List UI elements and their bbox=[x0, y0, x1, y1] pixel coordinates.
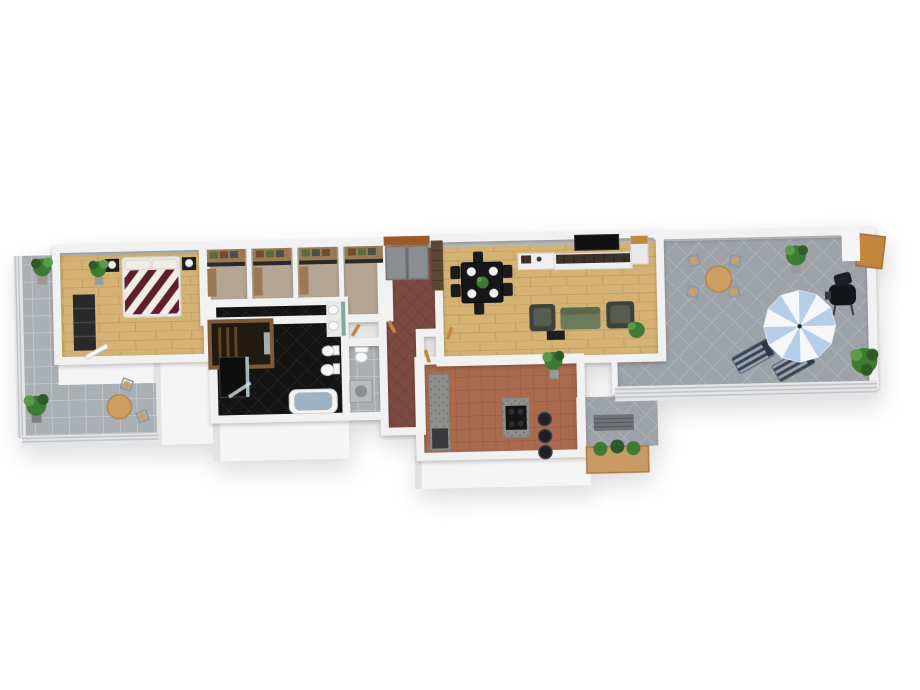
terrace-top-wall bbox=[654, 231, 875, 236]
floor-plan-page bbox=[0, 0, 920, 690]
sink bbox=[328, 305, 338, 314]
floor-plan-rendering bbox=[0, 0, 920, 690]
cooktop bbox=[505, 406, 527, 430]
coffee-table bbox=[547, 331, 565, 340]
entry-door-leaf bbox=[386, 246, 407, 279]
dining-chair bbox=[450, 266, 460, 279]
sideboard-slats bbox=[556, 253, 630, 264]
bedside-lamp bbox=[108, 261, 115, 268]
balcony-table bbox=[107, 394, 132, 419]
closet-niche bbox=[345, 246, 383, 264]
bar-stool bbox=[538, 412, 551, 425]
closet-partition bbox=[295, 244, 296, 304]
wooden-gate bbox=[856, 234, 886, 269]
sauna-glass-door bbox=[264, 332, 270, 354]
bar-stool bbox=[538, 429, 551, 442]
apartment-plan bbox=[13, 224, 891, 498]
dining-chair bbox=[502, 265, 512, 278]
patio-left-wall bbox=[579, 397, 580, 449]
bathtub-interior bbox=[294, 392, 332, 411]
brick-pillar bbox=[431, 240, 444, 290]
toilet bbox=[355, 352, 367, 362]
dining-chair bbox=[503, 283, 513, 296]
terrace-table bbox=[705, 266, 732, 293]
striped-duvet bbox=[124, 269, 179, 314]
toilet bbox=[321, 364, 334, 375]
double-bed bbox=[122, 256, 181, 317]
appliance bbox=[432, 428, 448, 448]
dining-chair bbox=[474, 302, 484, 314]
corner-pillar bbox=[841, 225, 860, 261]
bidet bbox=[322, 346, 334, 356]
closet-partition bbox=[341, 243, 342, 303]
dining-chair bbox=[473, 251, 483, 263]
closet-partition bbox=[249, 245, 250, 305]
bedside-lamp bbox=[185, 259, 192, 266]
door-lintel bbox=[384, 236, 430, 246]
wall-tv bbox=[575, 234, 619, 250]
pillow bbox=[152, 259, 177, 269]
shower-tray bbox=[219, 357, 249, 398]
sink bbox=[328, 321, 338, 330]
pillow bbox=[125, 260, 150, 270]
dining-chair bbox=[451, 284, 461, 297]
open-door bbox=[351, 324, 361, 337]
bar-stool bbox=[539, 445, 552, 458]
entry-door-leaf bbox=[408, 246, 429, 279]
vanity-mirror bbox=[341, 302, 346, 336]
